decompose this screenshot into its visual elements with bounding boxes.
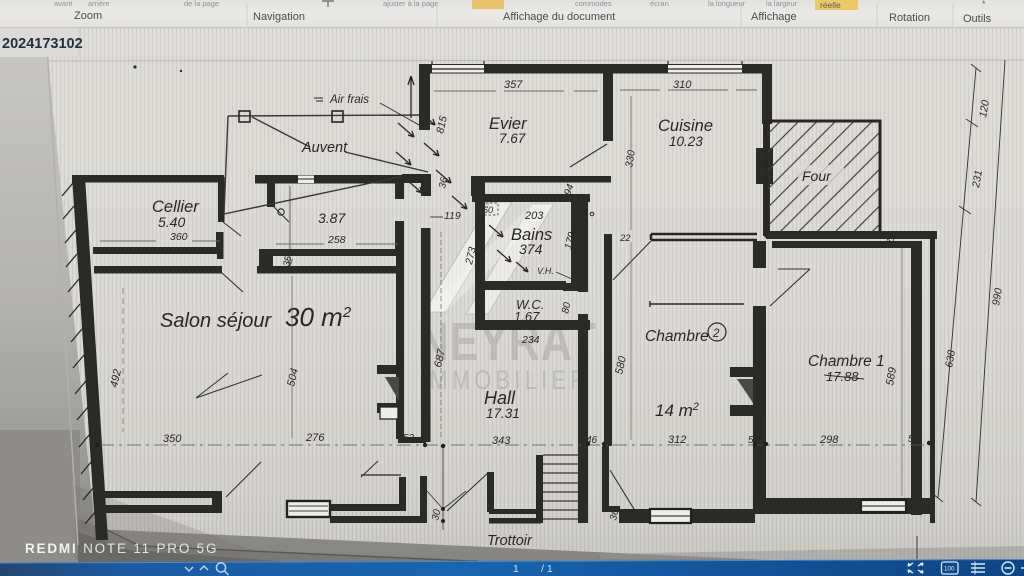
svg-text:la largeur: la largeur — [766, 0, 798, 8]
svg-text:360: 360 — [170, 231, 188, 243]
svg-text:Chambre 1: Chambre 1 — [808, 353, 885, 370]
svg-text:Salon séjour: Salon séjour — [160, 310, 273, 332]
svg-text:350: 350 — [163, 433, 182, 445]
svg-text:14 m2: 14 m2 — [655, 401, 699, 420]
svg-text:343: 343 — [492, 435, 511, 447]
svg-text:46: 46 — [586, 435, 598, 446]
svg-text:119: 119 — [444, 210, 461, 222]
svg-text:ajuster à la page: ajuster à la page — [383, 0, 438, 8]
svg-text:Zoom: Zoom — [74, 10, 102, 22]
svg-text:5.40: 5.40 — [158, 214, 185, 230]
svg-text:312: 312 — [668, 434, 686, 446]
svg-text:357: 357 — [504, 79, 523, 91]
svg-text:51: 51 — [908, 434, 919, 445]
svg-text:commodes: commodes — [575, 0, 612, 8]
svg-text:60: 60 — [483, 205, 493, 215]
svg-text:écran: écran — [650, 0, 669, 8]
svg-text:17.31: 17.31 — [486, 406, 520, 421]
svg-text:51: 51 — [886, 235, 896, 245]
svg-text:30 m2: 30 m2 — [285, 302, 352, 332]
svg-text:276: 276 — [305, 432, 325, 444]
svg-text:arrière: arrière — [88, 0, 110, 8]
svg-text:2024173102: 2024173102 — [2, 36, 83, 52]
svg-text:203: 203 — [524, 210, 544, 222]
svg-text:57: 57 — [748, 435, 760, 446]
svg-text:Chambre: Chambre — [645, 328, 709, 345]
svg-text:1: 1 — [513, 563, 519, 575]
svg-text:298: 298 — [819, 434, 839, 446]
svg-text:de la page: de la page — [184, 0, 219, 8]
svg-text:7.67: 7.67 — [499, 131, 526, 146]
svg-text:la longueur: la longueur — [708, 0, 746, 8]
svg-text:2: 2 — [712, 328, 720, 340]
svg-text:avant: avant — [54, 0, 73, 8]
svg-text:10.23: 10.23 — [669, 134, 703, 149]
svg-text:Trottoir: Trottoir — [487, 533, 533, 549]
svg-text:100: 100 — [944, 566, 955, 573]
svg-text:/ 1: / 1 — [541, 563, 553, 575]
svg-text:Cuisine: Cuisine — [658, 117, 713, 135]
svg-text:réelle: réelle — [820, 0, 841, 10]
svg-text:Rotation: Rotation — [889, 12, 930, 24]
svg-text:258: 258 — [327, 234, 346, 246]
svg-text:374: 374 — [519, 241, 543, 257]
svg-text:*: * — [982, 0, 986, 9]
svg-text:Air frais: Air frais — [329, 94, 369, 106]
svg-text:Affichage du document: Affichage du document — [503, 11, 615, 23]
svg-text:3.87: 3.87 — [318, 210, 346, 226]
svg-text:Hall: Hall — [484, 388, 516, 408]
svg-text:Four: Four — [802, 168, 832, 184]
svg-text:V.H.: V.H. — [537, 266, 554, 276]
svg-text:22: 22 — [619, 233, 631, 244]
svg-text:234: 234 — [521, 334, 540, 346]
svg-text:Navigation: Navigation — [253, 11, 305, 23]
svg-text:Outils: Outils — [963, 13, 992, 25]
svg-text:52: 52 — [403, 433, 415, 444]
svg-text:Auvent: Auvent — [301, 140, 348, 156]
svg-text:310: 310 — [673, 79, 692, 91]
svg-text:1.67: 1.67 — [514, 309, 540, 324]
svg-text:REDMI NOTE 11 PRO 5G: REDMI NOTE 11 PRO 5G — [25, 541, 218, 556]
svg-text:Affichage: Affichage — [751, 11, 797, 23]
